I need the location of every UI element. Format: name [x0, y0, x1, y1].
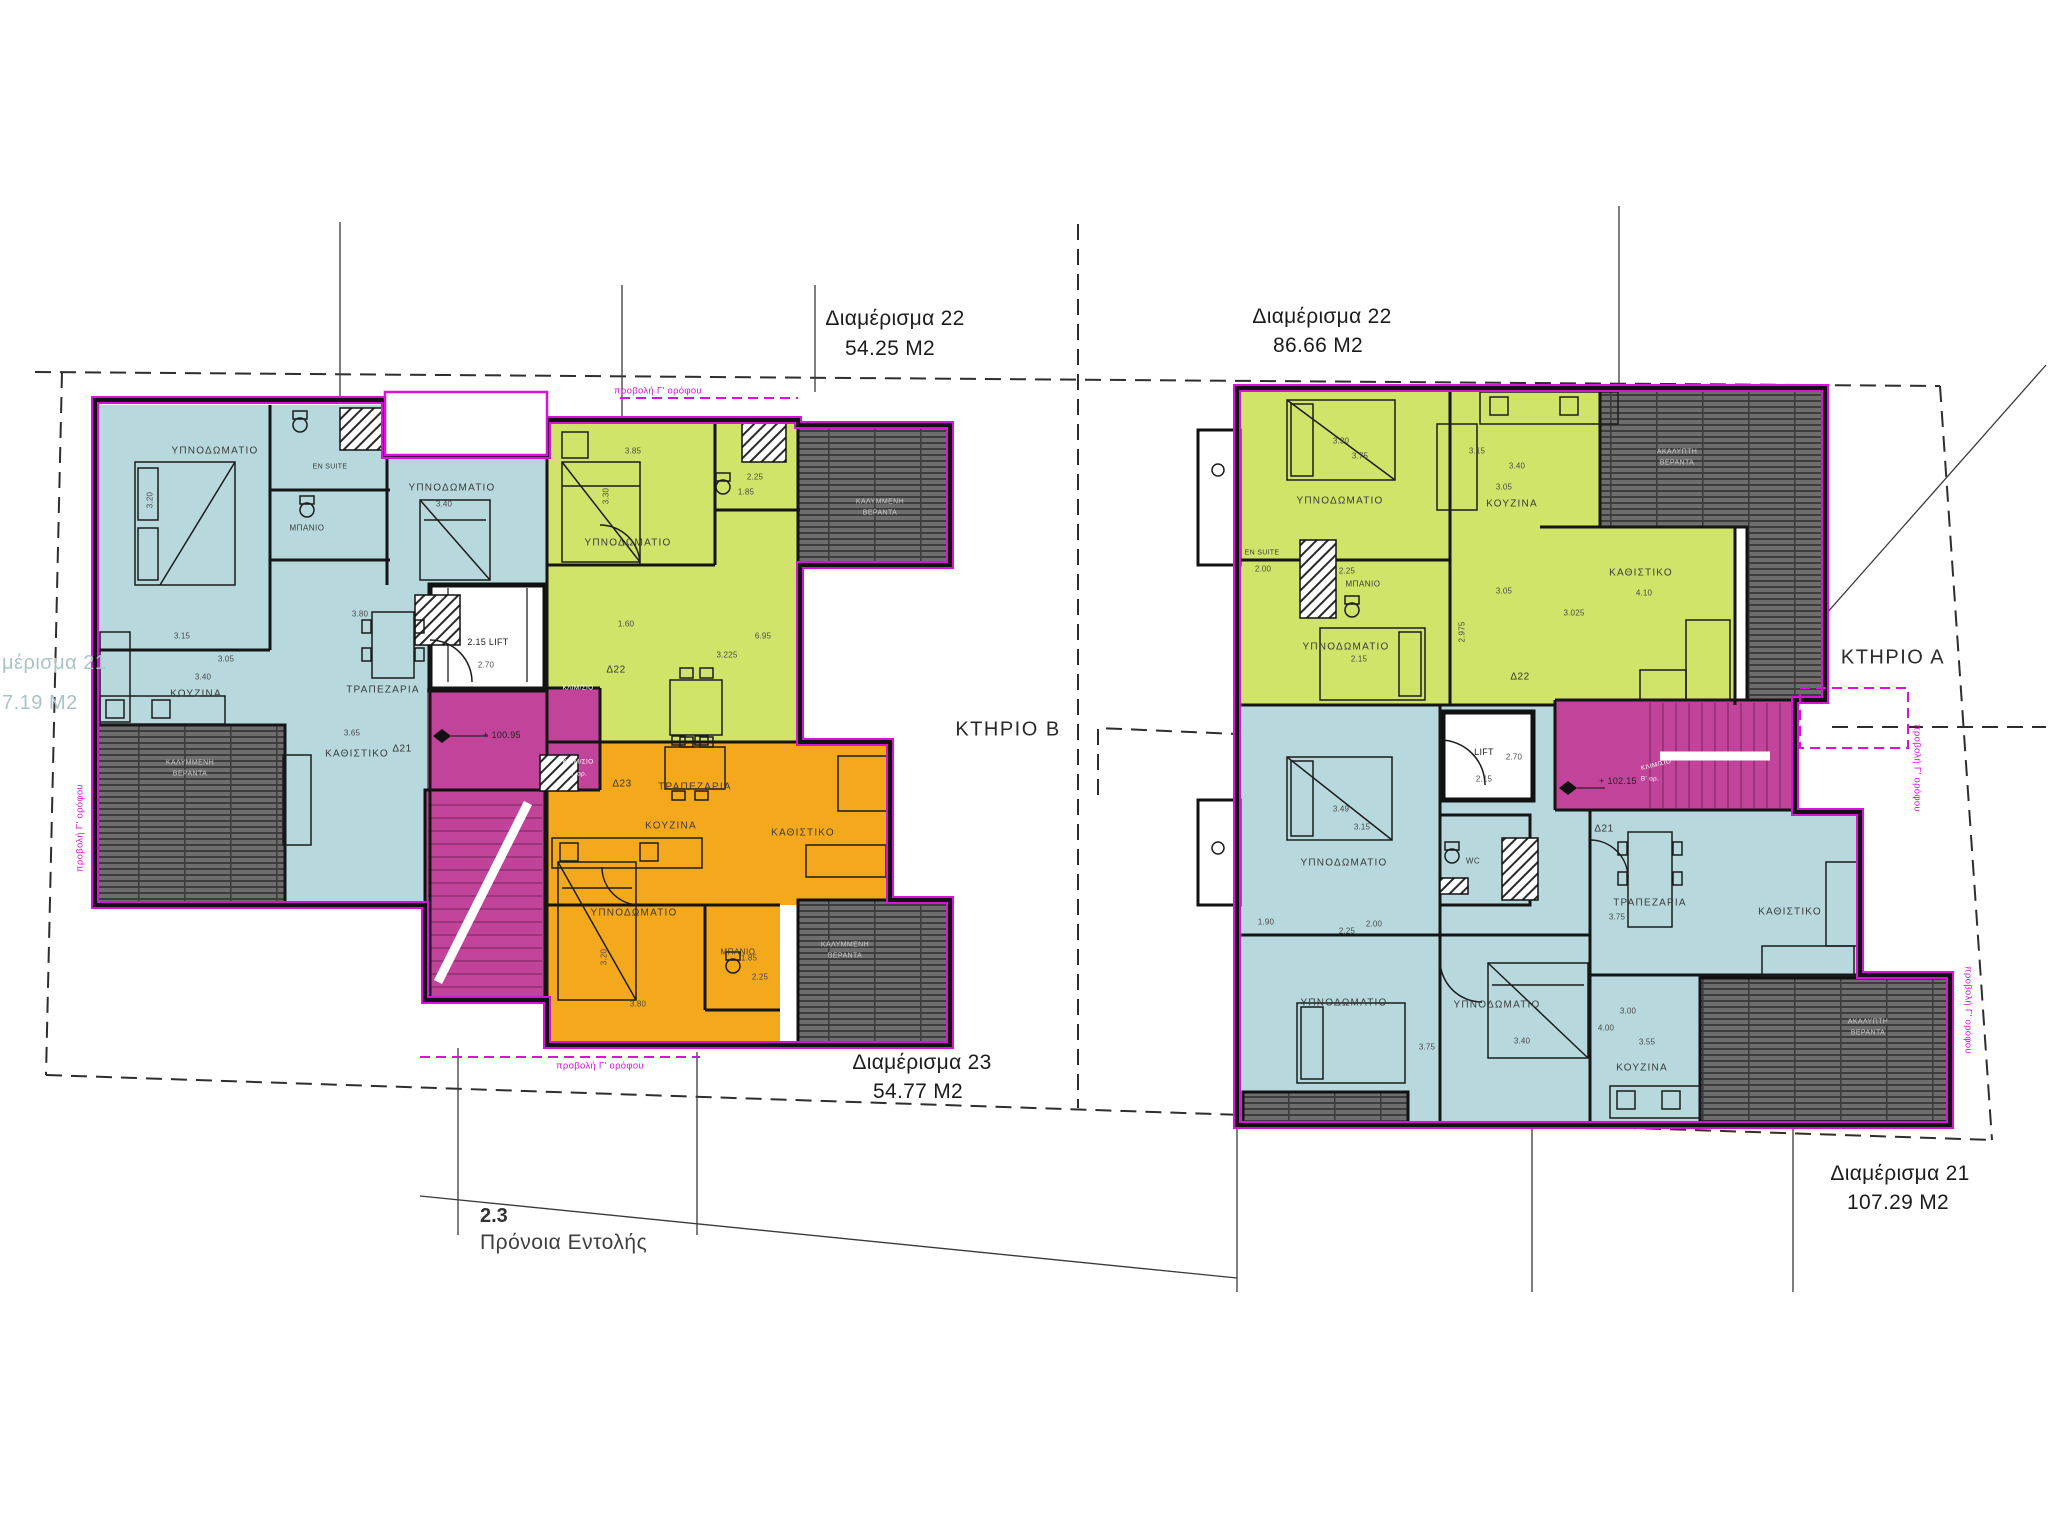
lift-label: LIFT	[1474, 747, 1494, 757]
room-label-bedroom: ΥΠΝΟΔΩΜΑΤΙΟ	[1301, 858, 1388, 869]
dimension-label: 3.05	[1496, 483, 1512, 492]
veranda-label: ΒΕΡΑΝΤΑ	[828, 953, 862, 960]
dimension-label: 3.20	[600, 949, 609, 965]
room-label-kitchen: ΚΟΥΖΙΝΑ	[170, 689, 222, 700]
room-label-dining: ΤΡΑΠΕΖΑΡΙΑ	[1613, 898, 1687, 909]
dimension-label: 3.40	[1514, 1037, 1530, 1046]
stair-floor-label: Β' ορ.	[1641, 776, 1659, 783]
dimension-label: 3.30	[1333, 437, 1349, 446]
stair-label: ΚΛΙΜ/ΣΙΟ	[563, 685, 594, 692]
level-marker-label: + 100.95	[483, 730, 521, 740]
unit-label-d22: Δ22	[606, 665, 625, 676]
floor-plan-drawing	[0, 0, 2048, 1536]
room-label-bedroom: ΥΠΝΟΔΩΜΑΤΙΟ	[1301, 998, 1388, 1009]
dimension-label: 3.40	[436, 500, 452, 509]
dimension-label: 1.60	[618, 620, 634, 629]
veranda-label: ΒΕΡΑΝΤΑ	[863, 510, 897, 517]
room-label-living: ΚΑΘΙΣΤΙΚΟ	[325, 749, 389, 760]
unit-label-d21: Δ21	[1594, 824, 1613, 835]
apartment-area-a21: 107.29 M2	[1847, 1191, 1949, 1215]
dimension-label: 2.25	[1339, 927, 1355, 936]
dimension-label: 3.15	[174, 632, 190, 641]
dimension-label: 3.55	[1639, 1038, 1655, 1047]
apartment-area-b22: 54.25 M2	[845, 337, 935, 361]
room-label-living: ΚΑΘΙΣΤΙΚΟ	[1758, 907, 1822, 918]
dimension-label: 3.05	[1496, 587, 1512, 596]
dimension-label: 3.40	[1509, 462, 1525, 471]
projection-label: προβολή Γ' ορόφου	[556, 1061, 644, 1072]
veranda-label: ΒΕΡΑΝΤΑ	[1851, 1030, 1885, 1037]
dimension-label: 3.75	[1609, 913, 1625, 922]
unit-label-d22: Δ22	[1510, 672, 1529, 683]
veranda-label: ΚΑΛΥΜΜΕΝΗ	[166, 760, 214, 767]
lift-width: 2.70	[1506, 753, 1522, 762]
dimension-label: 1.90	[1258, 918, 1274, 927]
room-label-bedroom: ΥΠΝΟΔΩΜΑΤΙΟ	[1303, 642, 1390, 653]
apartment-label-edge-cut: μέρισμα 21	[2, 652, 107, 675]
dimension-label: 2.25	[1339, 567, 1355, 576]
stair-floor-label: Β' ορ.	[569, 771, 587, 778]
apartment-label-a22: Διαμέρισμα 22	[1252, 305, 1391, 329]
dimension-label: 3.85	[625, 447, 641, 456]
apartment-area-a22: 86.66 M2	[1273, 334, 1363, 358]
apartment-label-b22: Διαμέρισμα 22	[825, 307, 964, 331]
room-label-ensuite: EN SUITE	[313, 464, 348, 471]
apartment-label-a21: Διαμέρισμα 21	[1830, 1162, 1969, 1186]
room-label-bedroom: ΥΠΝΟΔΩΜΑΤΙΟ	[585, 538, 672, 549]
lift-label: 2.15 LIFT	[467, 637, 508, 647]
room-label-wc: WC	[1466, 857, 1480, 866]
room-label-ensuite: EN SUITE	[1245, 550, 1280, 557]
note-number: 2.3	[480, 1205, 508, 1228]
room-label-kitchen: ΚΟΥΖΙΝΑ	[1486, 499, 1538, 510]
note-text: Πρόνοια Εντολής	[480, 1231, 647, 1255]
dimension-label: 3.49	[1333, 805, 1349, 814]
dimension-label: 2.15	[1351, 655, 1367, 664]
veranda-label: ΚΑΛΥΜΜΕΝΗ	[821, 942, 869, 949]
room-label-bathroom: ΜΠΑΝΙΟ	[290, 524, 325, 533]
dimension-label: 3.80	[630, 1000, 646, 1009]
dimension-label: 2.00	[1255, 565, 1271, 574]
veranda-label: ΚΑΛΥΜΜΕΝΗ	[856, 499, 904, 506]
room-label-bedroom: ΥΠΝΟΔΩΜΑΤΙΟ	[591, 908, 678, 919]
building-label-a: ΚΤΗΡΙΟ Α	[1841, 647, 1945, 670]
dimension-label: 3.20	[146, 492, 155, 508]
lift-depth: 2.15	[1476, 775, 1492, 784]
dimension-label: 3.30	[602, 488, 611, 504]
apartment-area-b23: 54.77 M2	[873, 1080, 963, 1104]
projection-label: προβολή Γ' ορόφου	[1963, 966, 1974, 1054]
room-label-living: ΚΑΘΙΣΤΙΚΟ	[1609, 568, 1673, 579]
dimension-label: 3.15	[1354, 823, 1370, 832]
dimension-label: 2.00	[1366, 920, 1382, 929]
apartment-area-edge-cut: 7.19 M2	[2, 692, 78, 715]
dimension-label: 4.00	[1598, 1024, 1614, 1033]
room-label-kitchen: ΚΟΥΖΙΝΑ	[645, 821, 697, 832]
apartment-label-b23: Διαμέρισμα 23	[852, 1051, 991, 1075]
dimension-label: 4.10	[1636, 589, 1652, 598]
projection-label: προβολή Γ' ορόφου	[614, 386, 702, 397]
veranda-label: ΑΚΑΛΥΠΤΗ	[1657, 449, 1697, 456]
room-label-bedroom: ΥΠΝΟΔΩΜΑΤΙΟ	[1297, 496, 1384, 507]
room-label-bathroom: ΜΠΑΝΙΟ	[1346, 580, 1381, 589]
dimension-label: 3.80	[352, 610, 368, 619]
stair-label: ΚΛΙΜ/ΣΙΟ	[563, 759, 594, 766]
room-label-dining: ΤΡΑΠΕΖΑΡΙΑ	[658, 782, 732, 793]
dimension-label: 3.65	[344, 729, 360, 738]
building-b	[95, 392, 950, 1057]
dimension-label: 3.00	[1620, 1007, 1636, 1016]
dimension-label: 6.95	[755, 632, 771, 641]
unit-label-d21: Δ21	[392, 744, 411, 755]
room-label-dining: ΤΡΑΠΕΖΑΡΙΑ	[346, 685, 420, 696]
dimension-label: 3.75	[1419, 1043, 1435, 1052]
dimension-label: 2.25	[747, 473, 763, 482]
dimension-label: 1.85	[738, 488, 754, 497]
dimension-label: 3.05	[218, 655, 234, 664]
veranda-label: ΑΚΑΛΥΠΤΗ	[1848, 1019, 1888, 1026]
dimension-label: 1.85	[741, 954, 757, 963]
veranda-label: ΒΕΡΑΝΤΑ	[173, 771, 207, 778]
dimension-label: 3.15	[1469, 447, 1485, 456]
building-label-b: ΚΤΗΡΙΟ Β	[955, 719, 1060, 742]
unit-label-d23: Δ23	[612, 779, 631, 790]
room-label-bedroom: ΥΠΝΟΔΩΜΑΤΙΟ	[409, 483, 496, 494]
dimension-label: 2.25	[752, 973, 768, 982]
dimension-label: 2.975	[1458, 621, 1467, 642]
level-marker-label: + 102.15	[1599, 776, 1637, 786]
projection-label: προβολή Γ' ορόφου	[75, 784, 86, 872]
dimension-label: 3.75	[1352, 452, 1368, 461]
lift-depth: 2.70	[478, 661, 494, 670]
room-label-bedroom: ΥΠΝΟΔΩΜΑΤΙΟ	[172, 446, 259, 457]
dimension-label: 3.025	[1563, 609, 1584, 618]
dimension-label: 3.225	[716, 651, 737, 660]
room-label-bedroom: ΥΠΝΟΔΩΜΑΤΙΟ	[1454, 1000, 1541, 1011]
floor-plan-page: Διαμέρισμα 22 54.25 M2 Διαμέρισμα 22 86.…	[0, 0, 2048, 1536]
room-label-living: ΚΑΘΙΣΤΙΚΟ	[771, 828, 835, 839]
room-label-kitchen: ΚΟΥΖΙΝΑ	[1616, 1063, 1668, 1074]
veranda-label: ΒΕΡΑΝΤΑ	[1660, 460, 1694, 467]
projection-label: προβολή Γ' ορόφου	[1912, 724, 1923, 812]
dimension-label: 3.40	[195, 673, 211, 682]
